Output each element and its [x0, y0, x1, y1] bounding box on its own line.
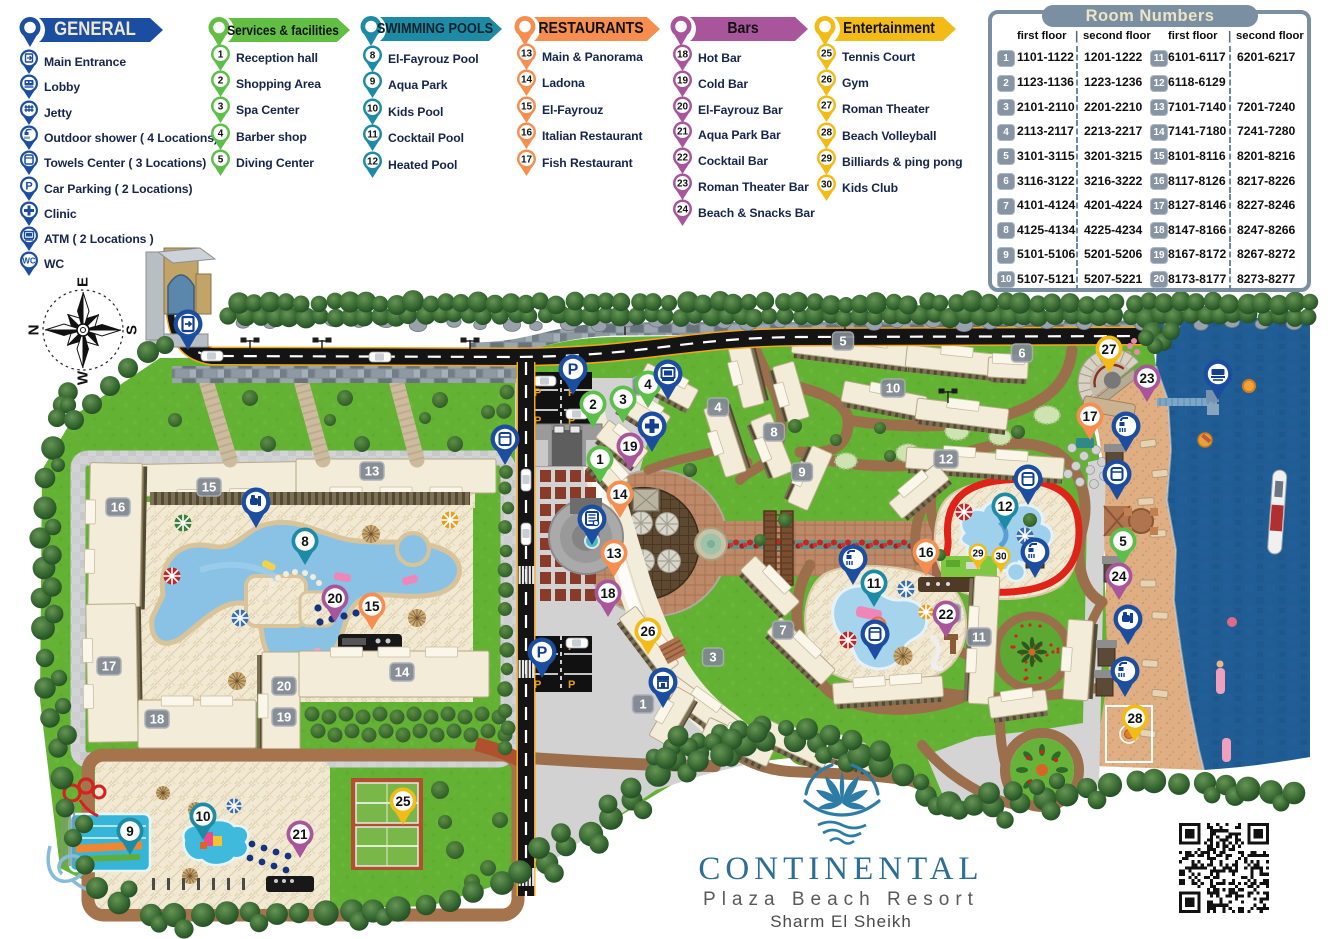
svg-text:29: 29	[821, 153, 832, 164]
svg-text:18: 18	[600, 586, 616, 601]
svg-text:9: 9	[370, 77, 376, 88]
svg-text:22: 22	[938, 607, 953, 622]
svg-text:30: 30	[995, 552, 1007, 563]
svg-text:24: 24	[1111, 569, 1127, 584]
svg-text:15: 15	[364, 599, 380, 614]
svg-text:23: 23	[1139, 371, 1155, 386]
svg-text:12: 12	[367, 156, 378, 167]
svg-text:14: 14	[521, 75, 532, 86]
svg-text:13: 13	[606, 546, 622, 561]
svg-text:23: 23	[677, 179, 688, 190]
svg-text:24: 24	[677, 204, 688, 215]
svg-text:12: 12	[939, 452, 953, 467]
svg-text:3: 3	[709, 650, 716, 665]
svg-text:20: 20	[327, 591, 342, 606]
svg-text:1: 1	[639, 697, 646, 712]
svg-text:4: 4	[644, 377, 652, 392]
svg-text:10: 10	[886, 381, 900, 396]
svg-text:3: 3	[218, 102, 224, 113]
svg-text:18: 18	[150, 712, 164, 727]
svg-text:2: 2	[589, 397, 597, 412]
svg-text:22: 22	[677, 153, 688, 164]
svg-text:S: S	[124, 325, 141, 335]
svg-text:25: 25	[821, 49, 832, 60]
svg-text:P: P	[537, 645, 548, 662]
svg-text:20: 20	[677, 101, 688, 112]
svg-text:11: 11	[972, 630, 986, 645]
svg-text:W: W	[75, 370, 92, 385]
svg-text:30: 30	[821, 180, 832, 191]
svg-text:14: 14	[612, 487, 628, 502]
svg-text:19: 19	[622, 439, 637, 454]
svg-text:3: 3	[619, 392, 627, 407]
svg-text:27: 27	[1101, 342, 1116, 357]
svg-text:P: P	[568, 362, 579, 379]
svg-text:28: 28	[1127, 711, 1143, 726]
svg-text:P: P	[568, 679, 575, 691]
svg-text:5: 5	[1119, 534, 1127, 549]
svg-text:8: 8	[370, 51, 376, 62]
svg-text:26: 26	[821, 75, 832, 86]
svg-text:5: 5	[839, 334, 846, 349]
svg-text:15: 15	[521, 101, 532, 112]
svg-text:17: 17	[102, 659, 116, 674]
svg-text:WC: WC	[22, 257, 35, 266]
svg-text:15: 15	[202, 480, 216, 495]
svg-text:21: 21	[292, 827, 308, 842]
svg-text:19: 19	[677, 75, 688, 86]
svg-text:14: 14	[395, 665, 410, 680]
svg-text:7: 7	[779, 623, 786, 638]
svg-text:25: 25	[395, 794, 411, 809]
svg-text:6: 6	[1018, 346, 1025, 361]
svg-text:26: 26	[640, 624, 656, 639]
svg-text:4: 4	[218, 128, 224, 139]
svg-text:8: 8	[301, 534, 309, 549]
svg-text:16: 16	[918, 545, 934, 560]
svg-text:13: 13	[365, 464, 379, 479]
svg-text:P: P	[25, 180, 32, 192]
svg-text:13: 13	[521, 49, 532, 60]
svg-text:11: 11	[367, 130, 378, 141]
svg-text:21: 21	[677, 127, 688, 138]
svg-text:17: 17	[1082, 409, 1097, 424]
svg-text:2: 2	[218, 76, 224, 87]
svg-text:9: 9	[126, 824, 134, 839]
svg-text:19: 19	[277, 710, 291, 725]
svg-text:1: 1	[218, 50, 224, 61]
svg-text:10: 10	[367, 103, 378, 114]
svg-text:27: 27	[821, 101, 832, 112]
svg-text:16: 16	[521, 128, 532, 139]
svg-text:20: 20	[277, 679, 291, 694]
svg-text:5: 5	[218, 154, 224, 165]
svg-text:12: 12	[997, 499, 1012, 514]
svg-text:9: 9	[798, 465, 805, 480]
svg-text:10: 10	[195, 809, 210, 824]
svg-text:11: 11	[867, 576, 882, 591]
svg-text:18: 18	[677, 50, 688, 61]
svg-text:8: 8	[770, 425, 777, 440]
svg-text:N: N	[26, 325, 43, 336]
svg-text:1: 1	[596, 452, 604, 467]
svg-text:17: 17	[521, 154, 532, 165]
svg-text:28: 28	[821, 127, 832, 138]
svg-text:16: 16	[111, 500, 125, 515]
svg-text:4: 4	[714, 400, 722, 415]
svg-text:E: E	[75, 277, 92, 287]
svg-text:29: 29	[972, 549, 984, 560]
